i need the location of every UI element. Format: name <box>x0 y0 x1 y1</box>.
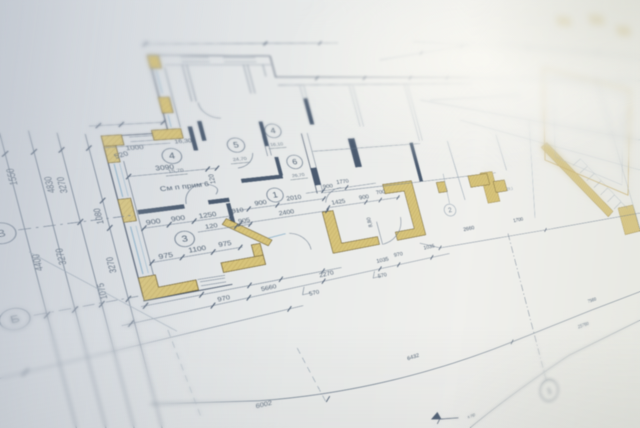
svg-text:См п прим 6: См п прим 6 <box>159 180 210 193</box>
svg-text:1100: 1100 <box>188 245 208 255</box>
svg-text:4: 4 <box>168 151 177 161</box>
svg-text:В: В <box>0 227 7 239</box>
svg-text:1000: 1000 <box>125 144 144 152</box>
svg-text:1770: 1770 <box>336 178 350 185</box>
svg-text:26,70: 26,70 <box>291 172 305 178</box>
svg-text:900: 900 <box>170 215 186 224</box>
svg-text:900: 900 <box>322 183 334 190</box>
svg-text:8,80: 8,80 <box>365 217 373 228</box>
svg-text:1035: 1035 <box>376 256 390 265</box>
svg-text:970: 970 <box>393 251 404 259</box>
svg-text:1075: 1075 <box>96 282 110 300</box>
svg-text:810: 810 <box>231 207 245 215</box>
svg-text:570: 570 <box>377 272 387 279</box>
svg-text:к пр: к пр <box>467 412 476 420</box>
svg-text:6432: 6432 <box>407 352 420 362</box>
svg-text:2010: 2010 <box>286 194 303 202</box>
svg-text:975: 975 <box>218 240 233 249</box>
svg-text:6: 6 <box>291 157 298 166</box>
svg-text:700: 700 <box>375 189 386 196</box>
svg-text:1: 1 <box>271 190 278 199</box>
svg-text:2270: 2270 <box>319 270 335 279</box>
svg-text:7560: 7560 <box>587 296 597 304</box>
svg-text:1700: 1700 <box>513 216 524 223</box>
svg-text:7: 7 <box>636 0 640 6</box>
svg-text:1250: 1250 <box>198 211 218 220</box>
svg-text:24,70: 24,70 <box>232 156 247 163</box>
svg-text:3270: 3270 <box>56 176 71 193</box>
svg-text:16,10: 16,10 <box>269 141 283 147</box>
svg-text:900: 900 <box>358 194 369 201</box>
svg-text:5660: 5660 <box>260 283 277 293</box>
svg-text:Б: Б <box>9 313 22 326</box>
svg-text:900: 900 <box>145 218 162 227</box>
svg-text:3270: 3270 <box>105 256 119 274</box>
svg-text:3: 3 <box>180 233 189 244</box>
svg-text:4400: 4400 <box>31 253 47 272</box>
svg-text:29,1: 29,1 <box>506 186 514 191</box>
svg-text:4: 4 <box>269 126 277 135</box>
svg-text:25760: 25760 <box>577 321 589 330</box>
svg-text:1080: 1080 <box>92 208 106 225</box>
svg-text:2660: 2660 <box>463 225 476 233</box>
svg-text:900: 900 <box>254 199 268 207</box>
svg-text:1: 1 <box>546 385 552 396</box>
svg-text:1550: 1550 <box>5 168 21 186</box>
svg-text:3270: 3270 <box>54 247 69 265</box>
svg-text:570: 570 <box>308 289 320 297</box>
svg-text:5: 5 <box>232 140 240 149</box>
svg-text:2: 2 <box>447 206 452 214</box>
svg-text:16,30: 16,30 <box>174 137 193 144</box>
svg-text:975: 975 <box>158 252 174 262</box>
